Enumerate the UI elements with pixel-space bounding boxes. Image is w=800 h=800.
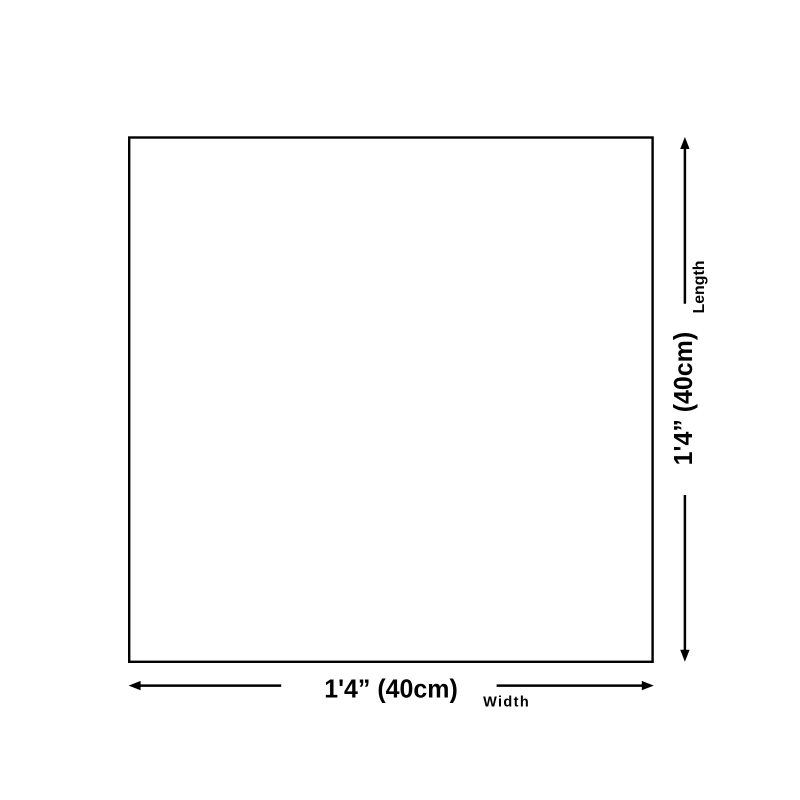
svg-text:1'4” (40cm): 1'4” (40cm) xyxy=(668,332,698,466)
svg-text:Width: Width xyxy=(483,695,529,711)
svg-text:Length: Length xyxy=(691,261,708,314)
svg-text:1'4” (40cm): 1'4” (40cm) xyxy=(324,674,458,704)
